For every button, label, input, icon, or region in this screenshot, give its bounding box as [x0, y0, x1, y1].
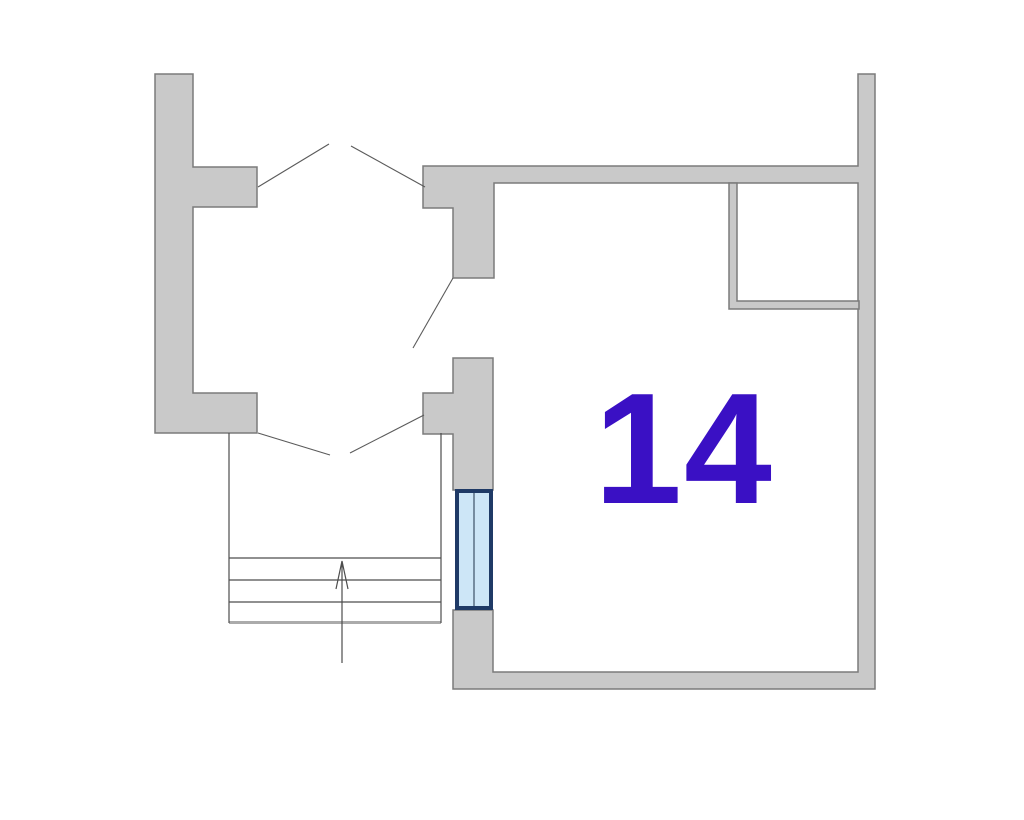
- stairs-direction-arrow: [336, 561, 348, 663]
- door-swing-bottom-left-leaf: [258, 433, 330, 455]
- door-swing-room-leaf: [413, 278, 453, 348]
- stairs-outline-and-treads: [229, 433, 441, 623]
- closet-thin-walls: [729, 183, 859, 309]
- door-swing-bottom-right-leaf: [350, 415, 424, 453]
- room-number-label: 14: [594, 361, 774, 537]
- door-swing-top-left-leaf: [258, 144, 329, 187]
- floor-plan-canvas: 14: [0, 0, 1024, 820]
- left-wall: [155, 74, 257, 433]
- door-swing-top-right-leaf: [351, 146, 425, 187]
- door-jamb-lower-wall: [423, 358, 493, 490]
- window-symbol: [455, 489, 493, 610]
- floor-plan-drawing: 14: [0, 0, 1024, 820]
- staircase-symbol: [229, 433, 441, 663]
